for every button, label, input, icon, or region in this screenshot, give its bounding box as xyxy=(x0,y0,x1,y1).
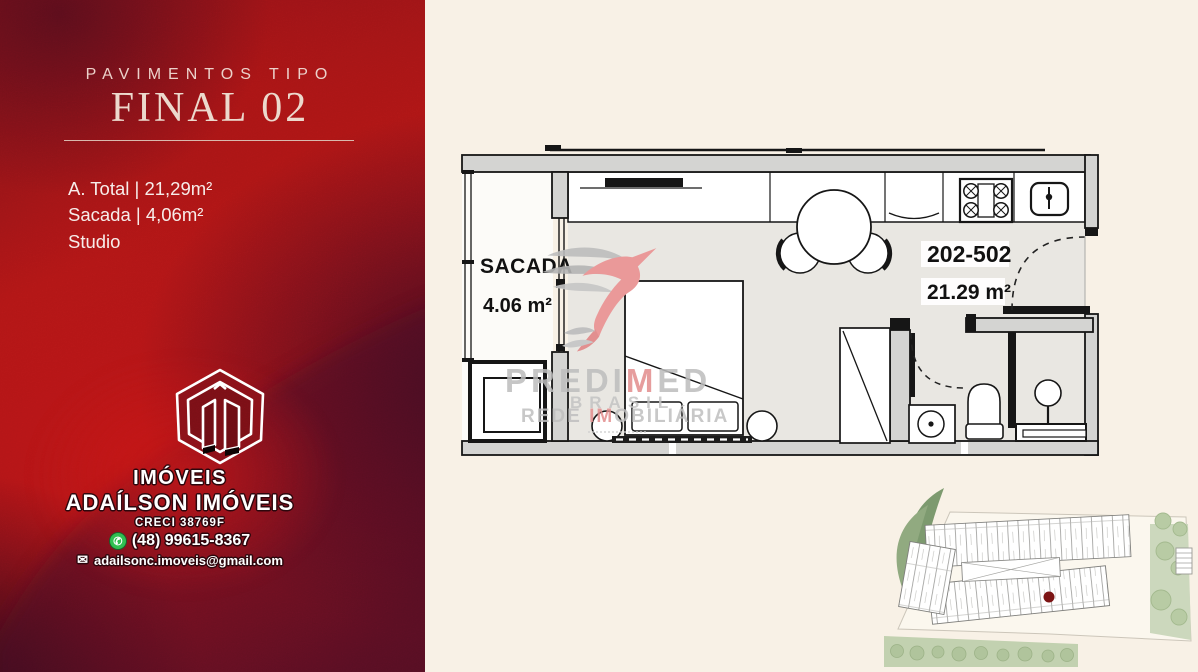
unit-range-label: 202-502 xyxy=(927,241,1011,267)
ac-unit-box xyxy=(470,362,545,441)
site-unit-marker xyxy=(1044,592,1055,603)
unit-area-label: 21.29 m² xyxy=(927,281,1011,304)
site-stairs xyxy=(1176,548,1192,574)
left-panel: PAVIMENTOS TIPO FINAL 02 A. Total | 21,2… xyxy=(0,0,425,672)
balcony-area-label: 4.06 m² xyxy=(483,295,552,317)
sliding-door xyxy=(556,218,565,352)
site-plan xyxy=(884,488,1192,667)
grain-texture xyxy=(0,0,425,672)
flyer: SACADA 4.06 m² 202-502 21.29 m² xyxy=(0,0,1198,672)
toilet xyxy=(966,384,1003,439)
wardrobe xyxy=(840,328,890,443)
kitchen-sink xyxy=(1031,183,1068,215)
balcony-label: SACADA xyxy=(480,255,573,278)
stove xyxy=(960,179,1012,222)
